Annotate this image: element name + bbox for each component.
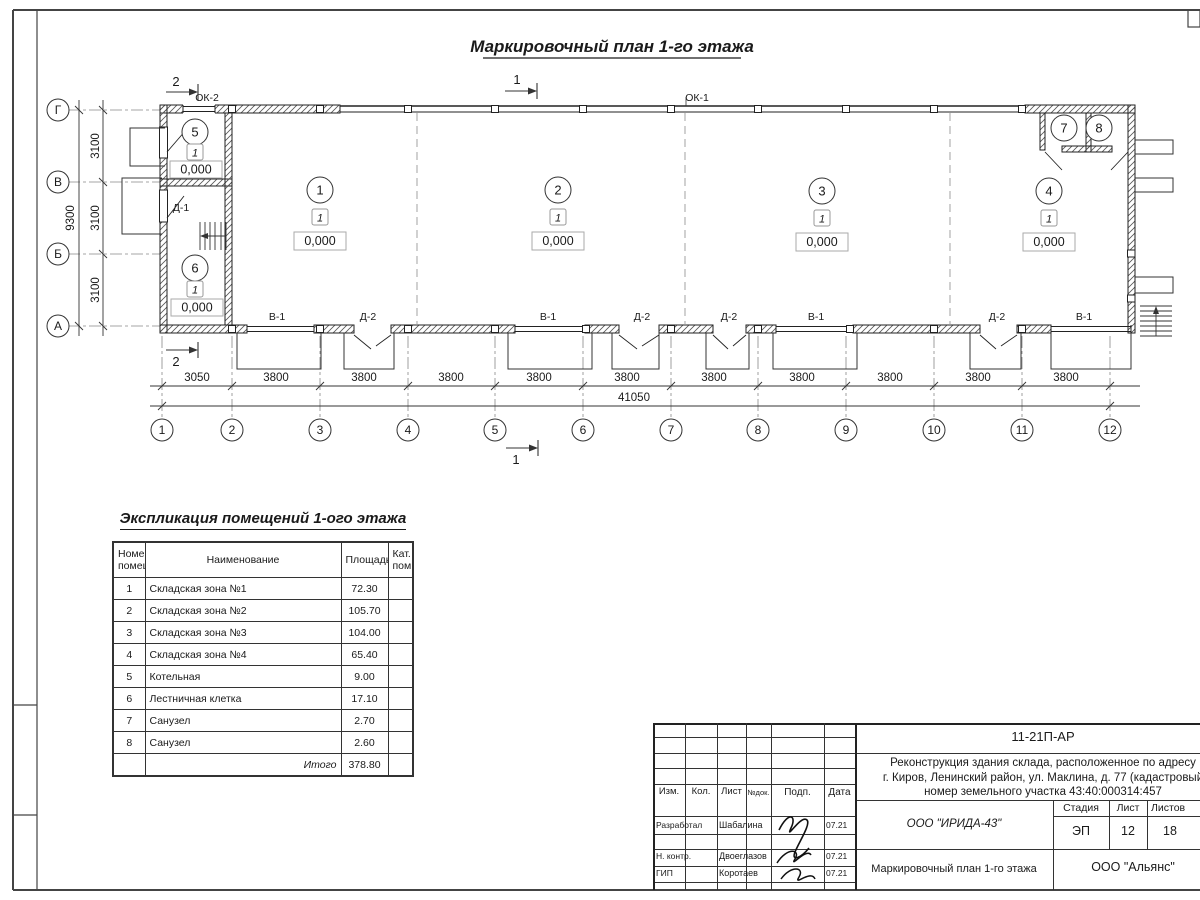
- explication-header-row: Номер помещ. Наименование Площадь Кат. п…: [113, 542, 413, 578]
- grid-col-label: 1: [159, 423, 166, 437]
- dim-label: 3800: [789, 372, 815, 384]
- grid-col-label: 6: [580, 423, 587, 437]
- dim-label: 3100: [90, 277, 102, 303]
- opening-label: Д-2: [634, 311, 651, 323]
- header-kol: Кол.: [685, 787, 717, 797]
- svg-text:1: 1: [316, 183, 323, 198]
- table-row: 7 Санузел 2.70: [113, 710, 413, 732]
- svg-text:0,000: 0,000: [542, 234, 573, 248]
- svg-text:2: 2: [172, 354, 179, 369]
- signature-mark: [771, 845, 824, 890]
- svg-text:7: 7: [1060, 121, 1067, 136]
- plan-title-text: Маркировочный план 1-го этажа: [470, 37, 754, 56]
- sheet-title: Маркировочный план 1-го этажа: [855, 863, 1053, 875]
- dim-label: 3050: [184, 372, 210, 384]
- signer-name: Коротаев: [719, 869, 771, 879]
- exterior-elements: [122, 128, 1173, 369]
- window-label-ok1: ОК-1: [685, 92, 709, 104]
- room-label-5: 5 1 0,000: [170, 119, 222, 178]
- porch-left-2: [122, 178, 162, 234]
- dim-label: 3100: [90, 205, 102, 231]
- section-mark-1-top: 1: [505, 72, 537, 99]
- grid-row-label: Г: [55, 103, 62, 117]
- svg-text:8: 8: [1095, 121, 1102, 136]
- table-row: 4 Складская зона №4 65.40: [113, 644, 413, 666]
- svg-text:1: 1: [192, 148, 198, 160]
- project-name-line3: номер земельного участка 43:40:000314:45…: [855, 786, 1200, 799]
- signer-name: Шабалина: [719, 821, 771, 831]
- opening-label: В-1: [808, 311, 825, 323]
- col-header-cat: Кат. пом.: [388, 542, 413, 578]
- plan-title: Маркировочный план 1-го этажа: [470, 37, 754, 58]
- signer-date: 07.21: [826, 821, 855, 830]
- svg-text:0,000: 0,000: [180, 163, 211, 177]
- grid-rows: Г В Б А: [47, 99, 160, 337]
- opening-label: В-1: [269, 311, 286, 323]
- door-label-d1: Д-1: [173, 202, 190, 214]
- dim-label: 3800: [701, 372, 727, 384]
- total-label: Итого: [145, 754, 341, 777]
- header-sheet: Лист: [1109, 803, 1147, 815]
- dims-left: 3100 3100 3100 9300: [65, 100, 107, 336]
- grid-col-label: 8: [755, 423, 762, 437]
- grid-col-label: 3: [317, 423, 324, 437]
- col-header-area: Площадь: [341, 542, 388, 578]
- wall-column-marks: [229, 106, 1026, 333]
- section-mark-2-bottom: 2: [166, 342, 198, 369]
- window-label-ok2: ОК-2: [195, 92, 219, 104]
- table-total-row: Итого 378.80: [113, 754, 413, 777]
- explication-table: Номер помещ. Наименование Площадь Кат. п…: [112, 541, 414, 777]
- opening-label: В-1: [540, 311, 557, 323]
- dim-label: 3800: [263, 372, 289, 384]
- landing-right: [1135, 277, 1173, 293]
- signer-date: 07.21: [826, 852, 855, 861]
- svg-text:1: 1: [513, 72, 520, 87]
- grid-col-label: 12: [1103, 423, 1117, 437]
- document-code: 11-21П-АР: [855, 730, 1200, 744]
- svg-text:1: 1: [192, 285, 198, 297]
- room-label-7: 7: [1051, 115, 1077, 141]
- svg-text:0,000: 0,000: [304, 234, 335, 248]
- grid-col-circles: [151, 419, 1121, 441]
- explication-section: Экспликация помещений 1-ого этажа Номер …: [112, 510, 414, 777]
- opening-label: Д-2: [360, 311, 377, 323]
- signer-role: ГИП: [656, 869, 718, 878]
- col-header-name: Наименование: [145, 542, 341, 578]
- grid-col-label: 7: [668, 423, 675, 437]
- total-value: 378.80: [341, 754, 388, 777]
- sheet-number: 12: [1109, 825, 1147, 839]
- header-list: Лист: [717, 787, 746, 797]
- zone-partition-lines: [417, 113, 950, 325]
- room-label-1: 1 1 0,000: [294, 177, 346, 250]
- dock-pits: [237, 333, 1131, 369]
- svg-text:1: 1: [555, 213, 561, 225]
- header-data: Дата: [824, 787, 855, 798]
- sheets-total: 18: [1147, 825, 1193, 839]
- signer-date: 07.21: [826, 869, 855, 878]
- room-label-8: 8: [1086, 115, 1112, 141]
- header-podp: Подп.: [771, 787, 824, 798]
- stair-room6: [200, 222, 226, 250]
- header-ndok: №док.: [746, 789, 771, 797]
- svg-text:1: 1: [317, 213, 323, 225]
- opening-label: Д-2: [989, 311, 1006, 323]
- title-block: 11-21П-АР Реконструкция здания склада, р…: [653, 723, 1200, 890]
- svg-text:2: 2: [172, 74, 179, 89]
- grid-col-label: 4: [405, 423, 412, 437]
- grid-col-label: 2: [229, 423, 236, 437]
- svg-text:1: 1: [819, 214, 825, 226]
- stage-value: ЭП: [1053, 825, 1109, 839]
- project-name-line2: г. Киров, Ленинский район, ул. Маклина, …: [855, 772, 1200, 785]
- dim-label: 3800: [614, 372, 640, 384]
- table-row: 1 Складская зона №1 72.30: [113, 578, 413, 600]
- room-label-2: 2 1 0,000: [532, 177, 584, 250]
- svg-text:1: 1: [1046, 214, 1052, 226]
- dim-total-label: 41050: [618, 392, 650, 404]
- designer-org: ООО "ИРИДА-43": [855, 818, 1053, 831]
- svg-text:2: 2: [554, 183, 561, 198]
- header-stage: Стадия: [1053, 803, 1109, 815]
- ramp-right-1: [1135, 140, 1173, 154]
- col-header-num: Номер помещ.: [113, 542, 145, 578]
- section-mark-2-top: 2: [166, 74, 198, 100]
- opening-label: В-1: [1076, 311, 1093, 323]
- header-sheets: Листов: [1151, 803, 1200, 815]
- grid-row-label: А: [54, 319, 62, 333]
- dim-label: 3100: [90, 133, 102, 159]
- grid-cols: 1 2 3 4 5 6 7 8 9 10 11 12: [151, 336, 1121, 441]
- project-name-line1: Реконструкция здания склада, расположенн…: [855, 757, 1200, 770]
- gate-leaf-symbols: [354, 335, 1017, 349]
- svg-text:0,000: 0,000: [1033, 235, 1064, 249]
- svg-text:4: 4: [1045, 184, 1052, 199]
- client-org: ООО "Альянс": [1053, 861, 1200, 875]
- ramp-right-2: [1135, 178, 1173, 192]
- room-label-3: 3 1 0,000: [796, 178, 848, 251]
- grid-col-label: 11: [1016, 423, 1029, 437]
- table-row: 3 Складская зона №3 104.00: [113, 622, 413, 644]
- room-labels: 1 1 0,000 2 1 0,000 3 1 0,000 4: [170, 115, 1112, 316]
- grid-col-label: 10: [927, 423, 941, 437]
- dim-label: 3800: [438, 372, 464, 384]
- table-row: 6 Лестничная клетка 17.10: [113, 688, 413, 710]
- svg-text:3: 3: [818, 184, 825, 199]
- section-mark-1-bottom: 1: [506, 440, 538, 467]
- signer-name: Двоеглазов: [719, 852, 771, 862]
- signer-role: Разработал: [656, 821, 718, 830]
- dim-label: 3800: [965, 372, 991, 384]
- stair-exterior: [1140, 306, 1172, 336]
- svg-text:1: 1: [512, 452, 519, 467]
- signer-role: Н. контр.: [656, 852, 718, 861]
- grid-col-label: 5: [492, 423, 499, 437]
- grid-row-label: Б: [54, 247, 62, 261]
- table-row: 8 Санузел 2.60: [113, 732, 413, 754]
- grid-row-label: В: [54, 175, 62, 189]
- dim-label: 3800: [1053, 372, 1079, 384]
- drawing-sheet: { "plan": { "title": "Маркировочный план…: [0, 0, 1200, 900]
- dims-bottom: 3050 3800 3800 3800 3800 3800 3800 3800 …: [150, 372, 1140, 410]
- svg-text:0,000: 0,000: [181, 301, 212, 315]
- table-row: 2 Складская зона №2 105.70: [113, 600, 413, 622]
- header-izm: Изм.: [653, 787, 685, 797]
- explication-title: Экспликация помещений 1-ого этажа: [112, 510, 414, 527]
- opening-label: Д-2: [721, 311, 738, 323]
- svg-text:5: 5: [191, 125, 198, 140]
- opening-labels: ОК-2 ОК-1 Д-1 В-1 Д-2 В-1 Д-2 Д-2 В-1 Д-…: [173, 92, 1093, 323]
- section-marks: 2 1 2 1: [166, 72, 538, 467]
- room-label-4: 4 1 0,000: [1023, 178, 1075, 251]
- table-row: 5 Котельная 9.00: [113, 666, 413, 688]
- room-label-6: 6 1 0,000: [171, 255, 223, 316]
- dim-total-label: 9300: [65, 205, 77, 231]
- dim-label: 3800: [877, 372, 903, 384]
- dim-label: 3800: [351, 372, 377, 384]
- svg-text:0,000: 0,000: [806, 235, 837, 249]
- format-mark-box: [1188, 10, 1200, 27]
- svg-text:6: 6: [191, 261, 198, 276]
- dim-label: 3800: [526, 372, 552, 384]
- grid-col-label: 9: [843, 423, 850, 437]
